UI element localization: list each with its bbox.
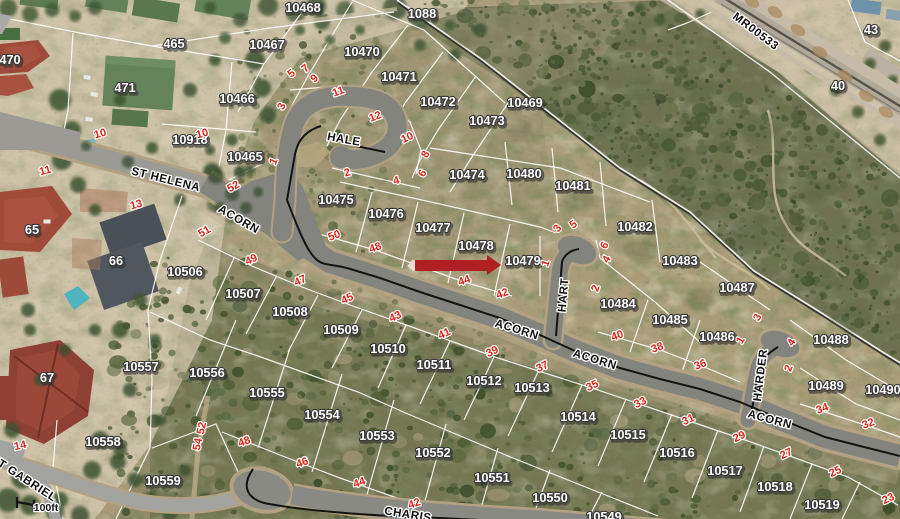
svg-text:10518: 10518: [757, 479, 793, 494]
svg-text:52: 52: [195, 421, 209, 435]
svg-text:10553: 10553: [359, 428, 395, 443]
svg-text:10490: 10490: [865, 382, 900, 397]
svg-text:10477: 10477: [415, 220, 451, 235]
svg-text:10551: 10551: [474, 470, 510, 485]
svg-text:10479: 10479: [505, 253, 541, 268]
svg-text:10488: 10488: [813, 332, 849, 347]
svg-text:10550: 10550: [532, 490, 568, 505]
svg-text:471: 471: [114, 80, 135, 95]
svg-text:10511: 10511: [417, 357, 452, 372]
svg-text:10519: 10519: [804, 497, 840, 512]
svg-text:10484: 10484: [600, 296, 636, 311]
svg-text:10506: 10506: [167, 264, 203, 279]
svg-text:10513: 10513: [514, 380, 550, 395]
svg-text:10489: 10489: [808, 378, 844, 393]
svg-text:10483: 10483: [662, 253, 698, 268]
svg-text:10508: 10508: [272, 304, 308, 319]
svg-text:10549: 10549: [586, 509, 622, 519]
svg-text:10517: 10517: [707, 463, 743, 478]
svg-text:40: 40: [831, 78, 845, 93]
svg-text:10469: 10469: [507, 95, 543, 110]
svg-text:10515: 10515: [610, 427, 646, 442]
svg-text:10476: 10476: [368, 206, 404, 221]
svg-text:10510: 10510: [370, 341, 406, 356]
svg-text:10516: 10516: [659, 445, 695, 460]
svg-text:10509: 10509: [323, 322, 359, 337]
svg-text:10465: 10465: [227, 149, 263, 164]
svg-text:10487: 10487: [719, 280, 755, 295]
svg-text:10486: 10486: [699, 329, 735, 344]
svg-text:10467: 10467: [249, 37, 285, 52]
svg-text:10555: 10555: [249, 385, 285, 400]
svg-text:65: 65: [25, 222, 39, 237]
svg-text:67: 67: [40, 370, 54, 385]
svg-text:10468: 10468: [285, 0, 321, 15]
svg-text:10558: 10558: [85, 434, 121, 449]
svg-text:10466: 10466: [219, 91, 255, 106]
svg-text:10514: 10514: [560, 409, 596, 424]
svg-text:10481: 10481: [555, 178, 591, 193]
svg-text:10478: 10478: [458, 238, 494, 253]
svg-text:465: 465: [163, 36, 184, 51]
svg-text:1088: 1088: [408, 6, 436, 21]
svg-text:100ft: 100ft: [34, 502, 59, 514]
svg-text:10552: 10552: [415, 445, 451, 460]
svg-text:43: 43: [864, 22, 878, 37]
svg-text:10507: 10507: [225, 286, 261, 301]
svg-text:10471: 10471: [381, 69, 417, 84]
svg-text:10482: 10482: [617, 219, 653, 234]
svg-text:10473: 10473: [469, 113, 505, 128]
svg-text:10472: 10472: [420, 94, 456, 109]
svg-text:10470: 10470: [344, 44, 380, 59]
svg-text:10474: 10474: [449, 167, 485, 182]
svg-text:10480: 10480: [506, 166, 542, 181]
svg-text:470: 470: [0, 52, 21, 67]
svg-text:10559: 10559: [145, 473, 181, 488]
svg-text:10475: 10475: [318, 192, 354, 207]
svg-text:10556: 10556: [189, 365, 225, 380]
svg-text:10512: 10512: [466, 373, 502, 388]
svg-text:66: 66: [109, 253, 123, 268]
svg-text:10557: 10557: [123, 359, 159, 374]
svg-text:10554: 10554: [304, 407, 340, 422]
svg-text:10485: 10485: [652, 312, 688, 327]
